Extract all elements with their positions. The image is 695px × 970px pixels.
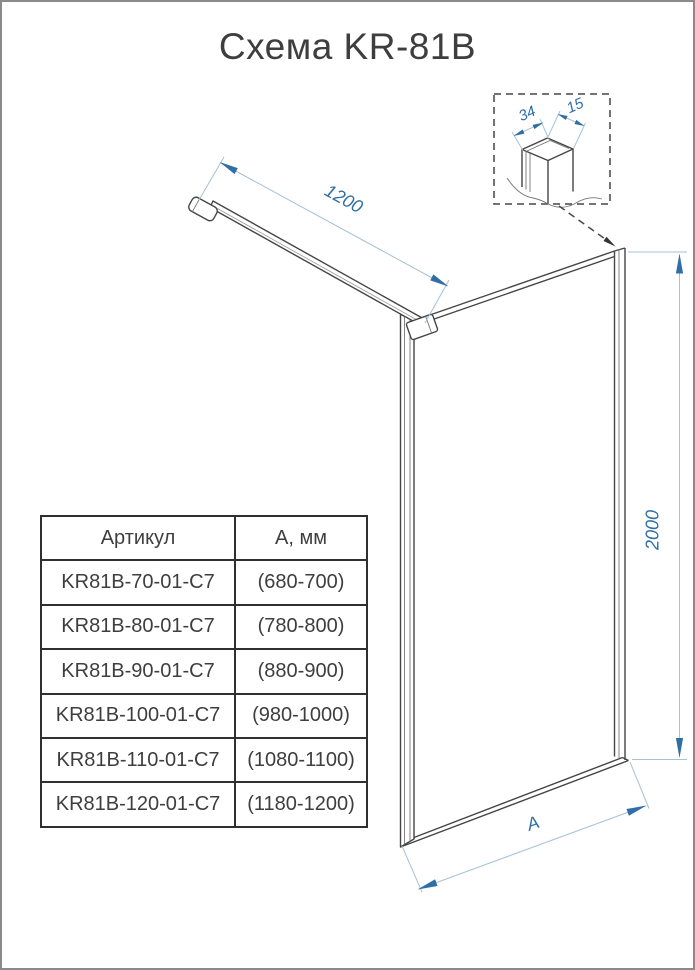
- dim-height-2000: 2000: [628, 252, 687, 760]
- width-cell: (780-800): [235, 605, 367, 649]
- article-cell: KR81B-110-01-C7: [41, 738, 235, 782]
- wall-bracket: [187, 196, 219, 223]
- width-cell: (880-900): [235, 649, 367, 693]
- dim-label-1200: 1200: [322, 180, 367, 217]
- table-row: KR81B-100-01-C7 (980-1000): [41, 694, 367, 738]
- dim-label-2000: 2000: [643, 510, 663, 551]
- column-header-width: А, мм: [235, 516, 367, 560]
- size-table: Артикул А, мм KR81B-70-01-C7 (680-700) K…: [40, 515, 368, 828]
- width-cell: (980-1000): [235, 694, 367, 738]
- wall-profile: [401, 315, 415, 848]
- column-header-article: Артикул: [41, 516, 235, 560]
- dim-label-34: 34: [516, 103, 538, 125]
- detail-leader-line: [559, 206, 616, 247]
- dim-label-a: A: [523, 812, 542, 835]
- article-cell: KR81B-80-01-C7: [41, 605, 235, 649]
- table-header-row: Артикул А, мм: [41, 516, 367, 560]
- table-row: KR81B-70-01-C7 (680-700): [41, 560, 367, 604]
- table-row: KR81B-90-01-C7 (880-900): [41, 649, 367, 693]
- dim-bar-1200: 1200: [199, 157, 449, 323]
- width-cell: (1080-1100): [235, 738, 367, 782]
- schema-page: Схема KR-81B: [0, 0, 695, 970]
- detail-callout: 34 15: [494, 94, 616, 247]
- width-cell: (680-700): [235, 560, 367, 604]
- dim-width-a: A: [402, 762, 649, 892]
- table-row: KR81B-120-01-C7 (1180-1200): [41, 782, 367, 826]
- dim-label-15: 15: [564, 94, 587, 117]
- width-cell: (1180-1200): [235, 782, 367, 826]
- glass-panel: [401, 248, 629, 847]
- table-row: KR81B-80-01-C7 (780-800): [41, 605, 367, 649]
- table-row: KR81B-110-01-C7 (1080-1100): [41, 738, 367, 782]
- article-cell: KR81B-70-01-C7: [41, 560, 235, 604]
- article-cell: KR81B-120-01-C7: [41, 782, 235, 826]
- article-cell: KR81B-90-01-C7: [41, 649, 235, 693]
- article-cell: KR81B-100-01-C7: [41, 694, 235, 738]
- support-bar: [210, 201, 429, 328]
